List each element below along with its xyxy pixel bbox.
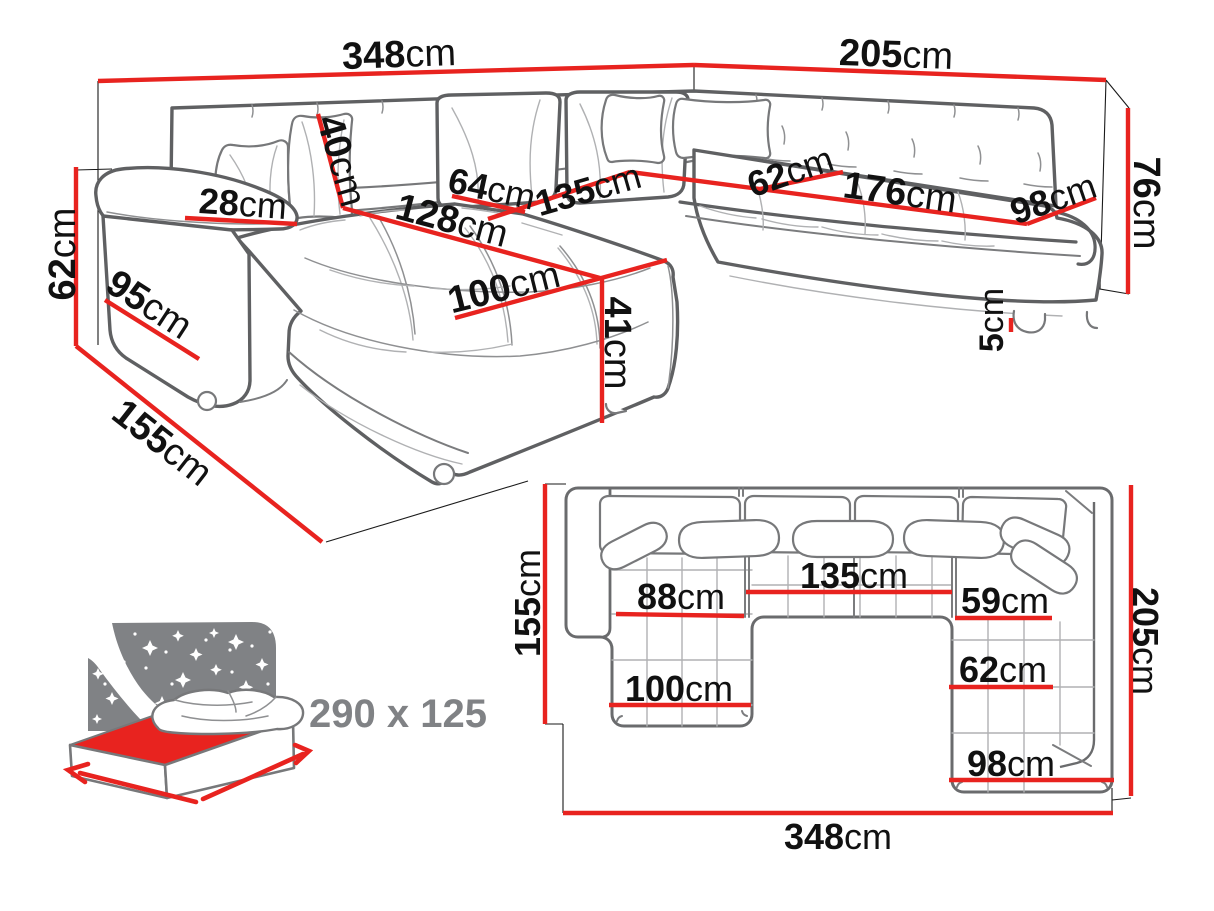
svg-text:348cm: 348cm (784, 816, 892, 857)
svg-text:135cm: 135cm (800, 555, 908, 596)
svg-text:98cm: 98cm (967, 743, 1055, 784)
svg-text:62cm: 62cm (42, 208, 84, 301)
svg-text:348cm: 348cm (341, 32, 456, 78)
svg-text:205cm: 205cm (838, 32, 953, 78)
svg-text:76cm: 76cm (1125, 157, 1167, 250)
svg-text:41cm: 41cm (596, 297, 638, 390)
svg-text:28cm: 28cm (198, 179, 289, 226)
svg-text:100cm: 100cm (625, 668, 733, 709)
svg-text:205cm: 205cm (1126, 587, 1167, 695)
svg-text:290 x 125: 290 x 125 (309, 692, 487, 736)
svg-text:5cm: 5cm (973, 288, 1011, 352)
svg-text:62cm: 62cm (959, 649, 1047, 690)
svg-text:59cm: 59cm (961, 580, 1049, 621)
svg-text:155cm: 155cm (507, 549, 548, 657)
svg-text:88cm: 88cm (637, 576, 725, 617)
